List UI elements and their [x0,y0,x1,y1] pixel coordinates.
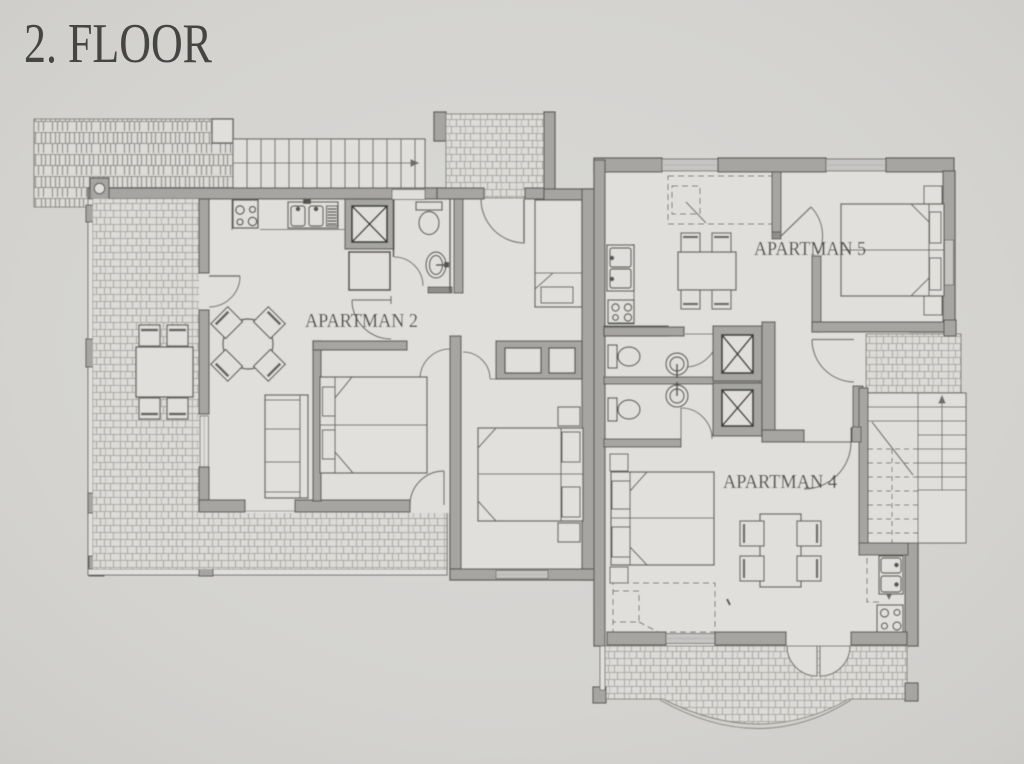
svg-text:APARTMAN 4: APARTMAN 4 [723,471,837,493]
svg-text:APARTMAN 2: APARTMAN 2 [305,310,418,332]
svg-text:2. FLOOR: 2. FLOOR [24,13,213,75]
svg-text:APARTMAN 5: APARTMAN 5 [754,238,866,260]
